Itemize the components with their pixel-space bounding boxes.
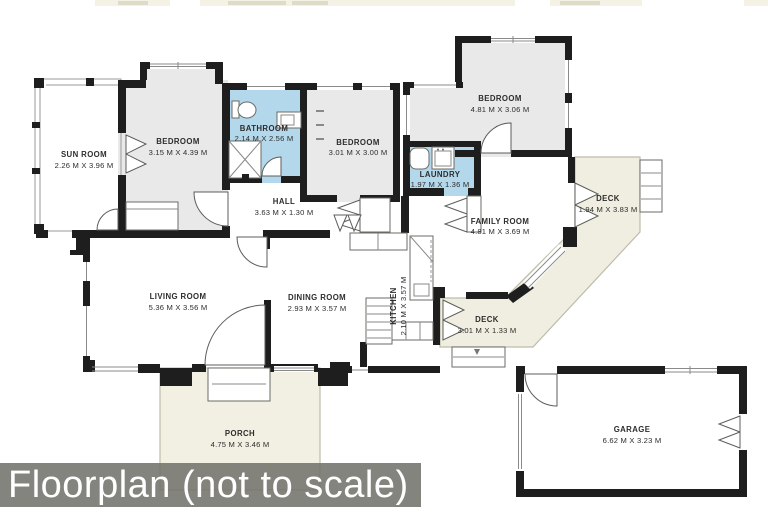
dims-bedroom-2: 3.01 M X 3.00 M: [329, 148, 388, 157]
dims-hall: 3.63 M X 1.30 M: [255, 208, 314, 217]
strip-fleck: [228, 1, 286, 5]
dims-porch: 4.75 M X 3.46 M: [211, 440, 270, 449]
dims-living-room: 5.36 M X 3.56 M: [149, 303, 208, 312]
door-family-entry-double: [445, 198, 467, 232]
label-bedroom-3: BEDROOM: [478, 94, 522, 103]
dims-bedroom-1: 3.15 M X 4.39 M: [149, 148, 208, 157]
strip-fleck: [118, 1, 148, 5]
door-garage-side: [525, 374, 557, 406]
label-family-room: FAMILY ROOM: [471, 217, 530, 226]
label-dining-room: DINING ROOM: [288, 293, 346, 302]
label-deck-lower: DECK: [475, 315, 499, 324]
label-laundry: LAUNDRY: [420, 170, 461, 179]
bedroom1-wardrobe: [126, 202, 178, 230]
washer-dial-2: [442, 149, 444, 151]
label-deck-upper: DECK: [596, 194, 620, 203]
label-kitchen: KITCHEN: [389, 287, 398, 324]
top-cropped-strip: [95, 0, 768, 6]
door-garage-rear-double: [719, 416, 740, 448]
label-living-room: LIVING ROOM: [150, 292, 207, 301]
label-garage: GARAGE: [614, 425, 651, 434]
label-hall: HALL: [273, 197, 295, 206]
dims-laundry: 1.97 M X 1.36 M: [411, 180, 470, 189]
shower-drain: [242, 174, 249, 179]
label-porch: PORCH: [225, 429, 255, 438]
laundry-tub-icon: [410, 148, 429, 169]
strip-segment: [744, 0, 768, 6]
door-hall-living: [237, 237, 267, 267]
floorplan-page: SUN ROOM 2.26 M X 3.96 M BEDROOM 3.15 M …: [0, 0, 768, 512]
dims-deck-upper: 1.94 M X 3.83 M: [579, 205, 638, 214]
label-bedroom-1: BEDROOM: [156, 137, 200, 146]
label-bedroom-2: BEDROOM: [336, 138, 380, 147]
strip-fleck: [560, 1, 600, 5]
label-sun-room: SUN ROOM: [61, 150, 107, 159]
toilet-bowl-icon: [238, 102, 256, 118]
dims-garage: 6.62 M X 3.23 M: [603, 436, 662, 445]
caption-banner: Floorplan (not to scale): [0, 463, 421, 507]
dims-deck-lower: 3.01 M X 1.33 M: [458, 326, 517, 335]
banner-label: Floorplan (not to scale): [8, 464, 409, 506]
deck-steps-lower: [452, 347, 505, 367]
deck-steps-upper: [640, 160, 662, 212]
kitchen-counter: [410, 236, 433, 300]
strip-fleck: [292, 1, 328, 5]
window-living-bottom: [92, 367, 138, 371]
label-bathroom: BATHROOM: [240, 124, 289, 133]
dims-family-room: 4.81 M X 3.69 M: [471, 227, 530, 236]
door-porch-entry: [205, 305, 265, 365]
hall-closet: [360, 198, 390, 232]
door-sunroom-exterior: [97, 209, 118, 230]
dims-bedroom-3: 4.81 M X 3.06 M: [471, 105, 530, 114]
washer-dial-1: [437, 149, 439, 151]
garage-door-gap: [525, 366, 557, 374]
window-garage-left-glass: [519, 394, 522, 469]
dims-kitchen: 2.10 M X 3.57 M: [399, 277, 408, 336]
floorplan-image: SUN ROOM 2.26 M X 3.96 M BEDROOM 3.15 M …: [0, 0, 768, 512]
window-dining-bottom: [274, 366, 314, 372]
dims-bathroom: 2.14 M X 2.56 M: [235, 134, 294, 143]
dims-sun-room: 2.26 M X 3.96 M: [55, 161, 114, 170]
room-bedroom-3-entry: [403, 82, 465, 143]
window-garage-top: [665, 366, 717, 374]
dims-dining-room: 2.93 M X 3.57 M: [288, 304, 347, 313]
